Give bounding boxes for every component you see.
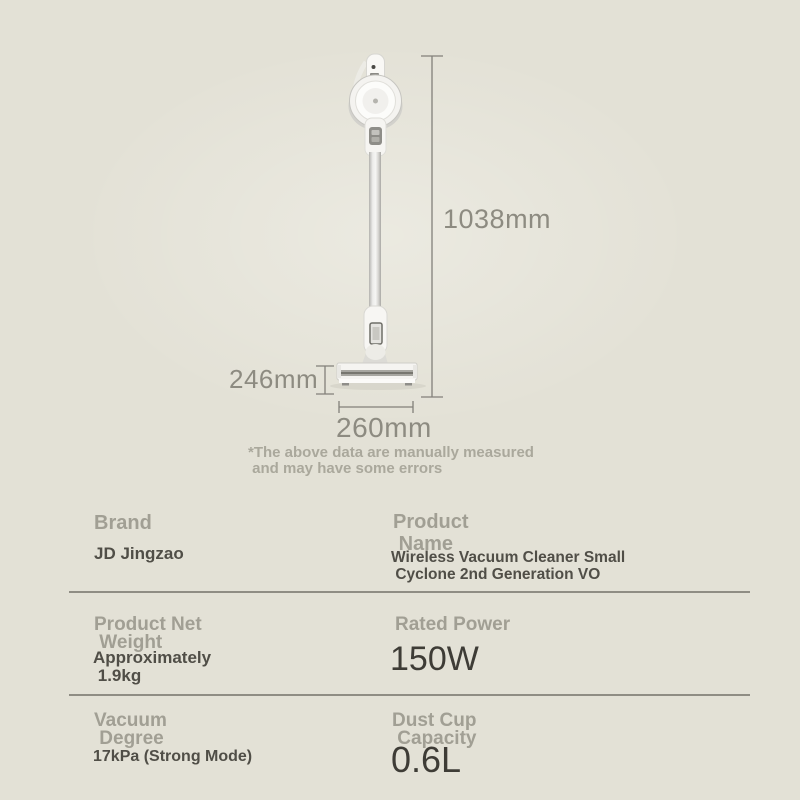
- spec-value-vacuum-degree: 17kPa (Strong Mode): [93, 748, 252, 766]
- head-width-dimension-label: 260mm: [336, 412, 416, 444]
- spec-value-rated-power: 150W: [390, 642, 479, 676]
- power-dot: [372, 65, 376, 69]
- floor-head-cap-right: [413, 365, 417, 378]
- height-dimension-line: [421, 56, 443, 397]
- spec-label-net-weight: Product Net Weight: [94, 616, 202, 652]
- wand-tube: [369, 152, 381, 312]
- floor-head-base: [339, 379, 415, 383]
- product-spec-infographic: { "colors": { "page_background": "#e3e1d…: [0, 0, 800, 800]
- motor-button: [373, 99, 378, 104]
- release-button: [369, 127, 382, 145]
- floor-head-groove-line: [341, 372, 413, 374]
- head-height-dimension-line: [316, 366, 334, 394]
- swivel-ball: [366, 344, 386, 360]
- row-divider-2: [69, 694, 750, 696]
- spec-label-brand: Brand: [94, 512, 152, 534]
- spec-value-dust-cup: 0.6L: [391, 742, 461, 778]
- floor-head-foot-right: [405, 383, 412, 386]
- spec-value-product-name: Wireless Vacuum Cleaner Small Cyclone 2n…: [391, 549, 625, 583]
- connector-window-inner: [373, 327, 380, 340]
- measurement-note: *The above data are manually measured an…: [248, 445, 534, 476]
- release-button-detail2: [372, 137, 380, 142]
- measurement-note-line1: *The above data are manually measured: [248, 445, 534, 461]
- measurement-note-line2: and may have some errors: [248, 461, 534, 477]
- floor-head-foot-left: [342, 383, 349, 386]
- spec-value-net-weight: Approximately 1.9kg: [93, 649, 211, 685]
- spec-value-brand: JD Jingzao: [94, 545, 184, 563]
- spec-label-vacuum-degree: Vacuum Degree: [94, 712, 167, 748]
- floor-head-cap-left: [337, 365, 341, 378]
- height-dimension-label: 1038mm: [443, 204, 551, 235]
- head-height-dimension-label: 246mm: [229, 364, 318, 395]
- spec-label-rated-power: Rated Power: [395, 616, 510, 634]
- row-divider-1: [69, 591, 750, 593]
- release-button-detail: [372, 130, 380, 135]
- vacuum-cleaner-illustration: [0, 0, 800, 470]
